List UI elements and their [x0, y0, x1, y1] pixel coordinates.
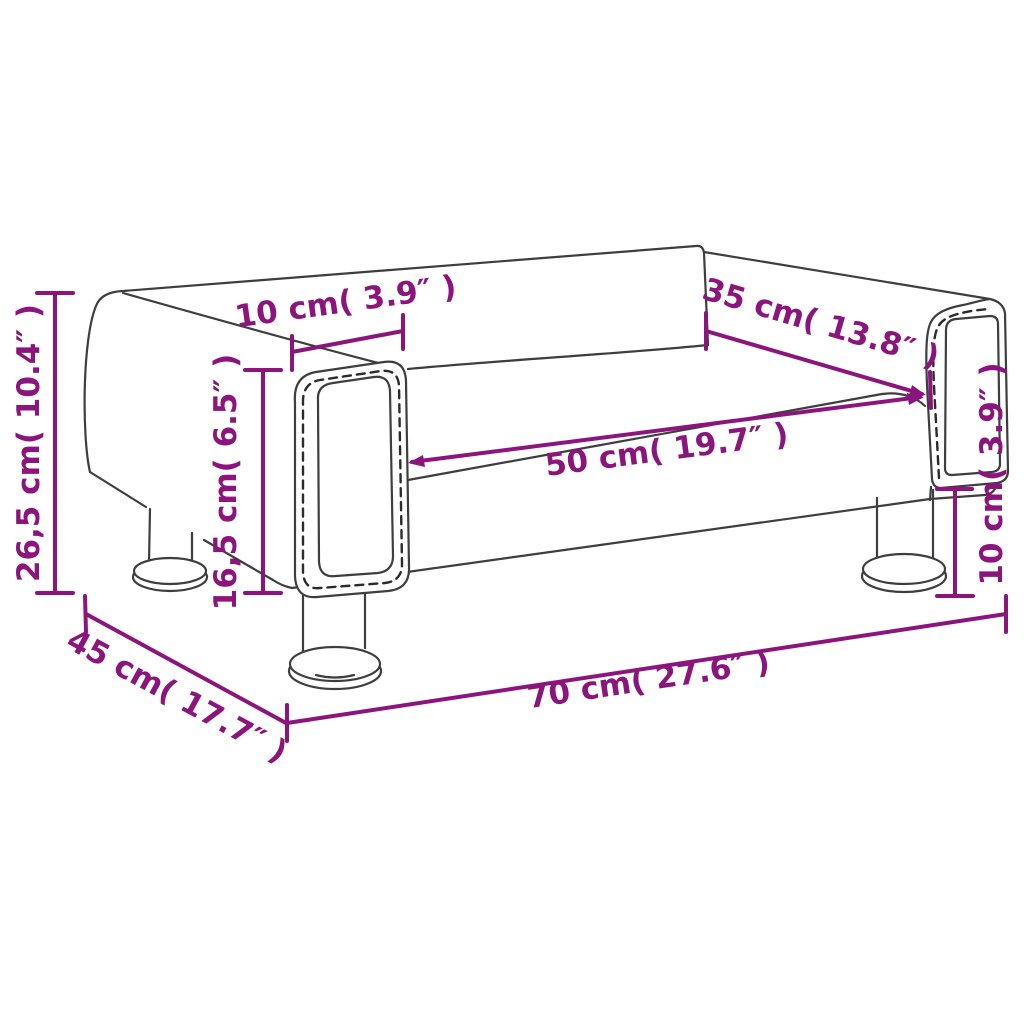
- dimension-line: [292, 331, 403, 352]
- dimension-label: 16,5 cm( 6.5″ ): [208, 354, 244, 611]
- dimension-label: 35 cm( 13.8″ ): [698, 271, 943, 375]
- front-right-leg: [862, 490, 946, 592]
- dimension-label: 70 cm( 27.6″ ): [525, 644, 773, 716]
- dimension-label: 10 cm( 3.9″ ): [974, 362, 1010, 585]
- sofa-dimension-svg: 26,5 cm( 10.4″ ) 16,5 cm( 6.5″ ) 10 cm( …: [0, 0, 1024, 1024]
- dimension-label: 26,5 cm( 10.4″ ): [11, 304, 47, 582]
- dimension-seat-width: 50 cm( 19.7″ ): [408, 393, 924, 484]
- dimension-overall-height: 26,5 cm( 10.4″ ): [11, 293, 73, 593]
- dimension-backrest-width: 35 cm( 13.8″ ): [698, 271, 943, 408]
- rear-left-leg: [133, 509, 207, 591]
- dimension-overall-width: 70 cm( 27.6″ ): [287, 596, 1006, 723]
- dimension-label: 45 cm( 17.7″ ): [61, 622, 293, 770]
- left-bottom-edge: [90, 472, 146, 507]
- seat-right-corner: [930, 487, 931, 500]
- left-armrest-inner-panel: [318, 377, 393, 576]
- sofa-legs: [133, 490, 946, 689]
- dimension-depth: 45 cm( 17.7″ ): [61, 596, 293, 770]
- dimension-annotations: 26,5 cm( 10.4″ ) 16,5 cm( 6.5″ ) 10 cm( …: [11, 269, 1010, 771]
- dimension-label: 50 cm( 19.7″ ): [543, 416, 790, 484]
- dimension-diagram: 26,5 cm( 10.4″ ) 16,5 cm( 6.5″ ) 10 cm( …: [0, 0, 1024, 1024]
- backrest-front-edge: [408, 345, 708, 369]
- dimension-tick: [930, 372, 931, 408]
- dimension-seat-height: 16,5 cm( 6.5″ ): [208, 354, 281, 611]
